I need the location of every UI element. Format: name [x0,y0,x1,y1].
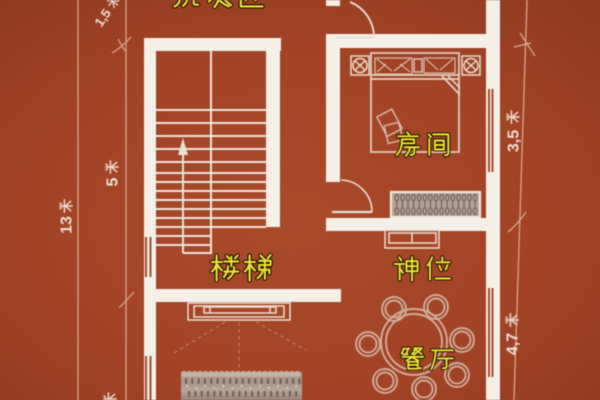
svg-text:5: 5 [105,177,122,186]
svg-text:4,7: 4,7 [505,333,522,355]
svg-text:3,5: 3,5 [506,130,523,152]
svg-text:13: 13 [59,216,76,234]
